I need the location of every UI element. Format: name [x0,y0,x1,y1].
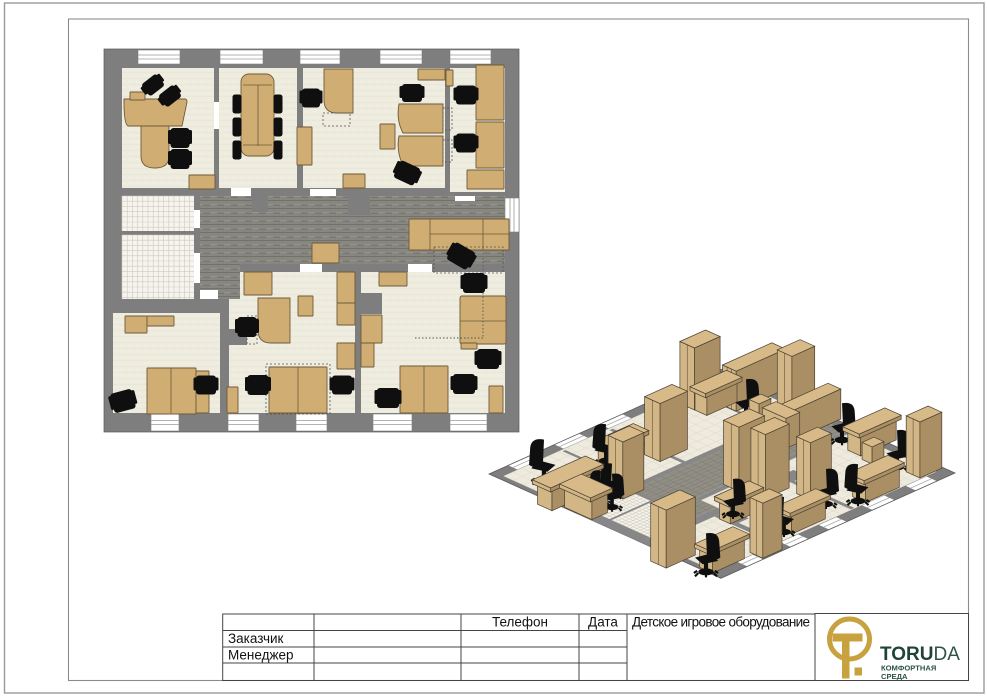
svg-text:Дата: Дата [588,615,618,630]
svg-text:Менеджер: Менеджер [228,648,294,663]
svg-text:Детское игровое оборудование: Детское игровое оборудование [632,615,810,630]
svg-text:Заказчик: Заказчик [228,631,284,646]
svg-text:СРЕДА: СРЕДА [881,672,908,681]
svg-text:TORUDA: TORUDA [880,644,960,665]
svg-text:Телефон: Телефон [492,615,548,630]
